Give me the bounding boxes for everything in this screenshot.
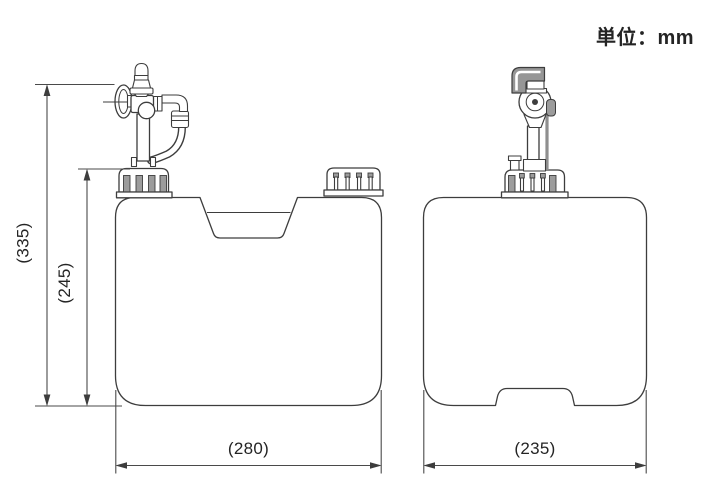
valve-ball	[138, 102, 154, 118]
vent-knob	[130, 64, 153, 97]
dim-front-width-label: (280)	[228, 439, 269, 458]
dim-overall-height: (335)	[14, 84, 51, 406]
front-view	[103, 64, 383, 406]
unit-label: 単位：mm	[596, 25, 694, 49]
elbow-pipe	[162, 95, 188, 112]
technical-drawing-canvas: (335) (245) (280) (235) 単位：mm	[0, 0, 712, 497]
dim-body-height-label: (245)	[55, 262, 74, 303]
tank-front-outline	[116, 198, 382, 406]
side-knob	[547, 100, 556, 117]
side-view	[424, 68, 647, 406]
filler-cap-with-valve	[117, 169, 173, 198]
dim-body-height: (245)	[55, 169, 90, 407]
pump-valve-assembly	[103, 64, 189, 167]
cap-stub	[511, 160, 520, 170]
dim-overall-height-label: (335)	[14, 222, 33, 263]
pipe-tab-left	[132, 158, 137, 167]
pipe-tab-right	[151, 158, 156, 167]
dim-side-width-label: (235)	[514, 439, 555, 458]
pump-base-block	[524, 160, 546, 172]
tank-side-outline	[424, 198, 647, 406]
pump-pipe	[528, 126, 540, 160]
riser-pipe	[137, 114, 150, 161]
spare-cap	[324, 168, 383, 196]
hose-coupling	[172, 111, 189, 128]
pump-hub-dot	[532, 99, 538, 105]
